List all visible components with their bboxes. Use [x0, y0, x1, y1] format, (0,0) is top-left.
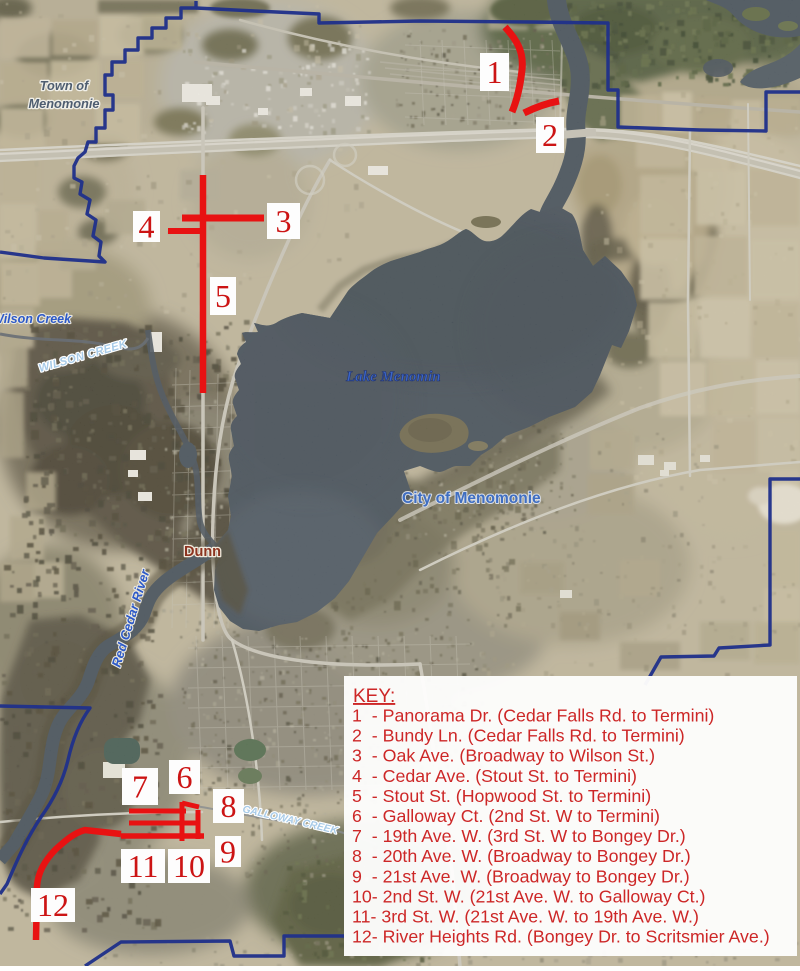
svg-text:8 - 20th Ave. W. (Broadway to: 8 - 20th Ave. W. (Broadway to Bongey Dr.… — [352, 846, 691, 866]
svg-text:8: 8 — [221, 788, 237, 824]
svg-text:4 - Cedar Ave. (Stout St. to: 4 - Cedar Ave. (Stout St. to Termini) — [352, 766, 637, 786]
svg-text:Town of: Town of — [40, 78, 90, 93]
svg-text:11: 11 — [128, 848, 159, 884]
svg-text:City of Menomonie: City of Menomonie — [402, 490, 541, 507]
svg-text:9: 9 — [220, 834, 236, 870]
svg-text:4: 4 — [139, 209, 155, 245]
svg-text:5 - Stout St. (Hopwood St. to: 5 - Stout St. (Hopwood St. to Termini) — [352, 786, 651, 806]
svg-text:9 - 21st Ave. W. (Broadway to: 9 - 21st Ave. W. (Broadway to Bongey Dr.… — [352, 866, 690, 886]
svg-text:6: 6 — [177, 759, 193, 795]
svg-text:12- River Heights Rd. (Bongey: 12- River Heights Rd. (Bongey Dr. to Scr… — [352, 927, 770, 947]
svg-text:12: 12 — [37, 887, 69, 923]
svg-text:Wilson Creek: Wilson Creek — [0, 312, 72, 326]
svg-text:6 - Galloway Ct. (2nd St. W t: 6 - Galloway Ct. (2nd St. W to Termini) — [352, 806, 660, 826]
svg-text:Lake Menomin: Lake Menomin — [345, 369, 441, 385]
svg-text:10: 10 — [173, 848, 205, 884]
svg-text:2: 2 — [542, 117, 558, 153]
svg-text:3: 3 — [276, 203, 292, 239]
svg-text:5: 5 — [215, 278, 231, 314]
svg-text:Menomonie: Menomonie — [28, 96, 99, 111]
svg-text:7: 7 — [132, 769, 148, 805]
svg-text:Dunn: Dunn — [184, 544, 221, 560]
svg-text:2 - Bundy Ln. (Cedar Falls Rd: 2 - Bundy Ln. (Cedar Falls Rd. to Termin… — [352, 726, 685, 746]
svg-text:10- 2nd St. W. (21st Ave. W. t: 10- 2nd St. W. (21st Ave. W. to Galloway… — [352, 886, 705, 906]
svg-text:KEY:: KEY: — [353, 686, 395, 707]
svg-text:3 - Oak Ave. (Broadway to Wil: 3 - Oak Ave. (Broadway to Wilson St.) — [352, 746, 655, 766]
svg-text:1 - Panorama Dr. (Cedar Falls: 1 - Panorama Dr. (Cedar Falls Rd. to Ter… — [352, 706, 714, 726]
svg-text:7 - 19th Ave. W. (3rd St. W t: 7 - 19th Ave. W. (3rd St. W to Bongey Dr… — [352, 826, 686, 846]
svg-text:1: 1 — [487, 54, 503, 90]
svg-text:11- 3rd St. W. (21st Ave. W. t: 11- 3rd St. W. (21st Ave. W. to 19th Ave… — [352, 907, 699, 927]
